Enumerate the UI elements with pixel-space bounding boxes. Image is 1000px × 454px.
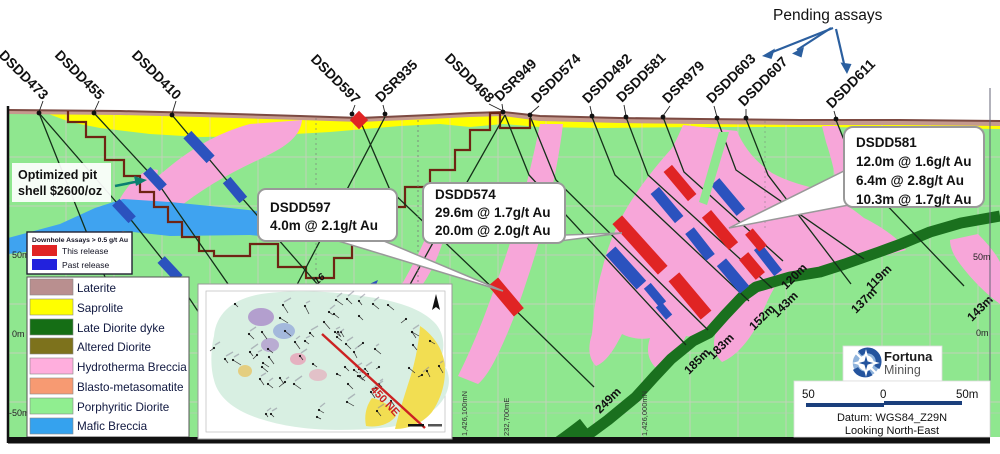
svg-text:Mining: Mining bbox=[884, 363, 921, 377]
svg-text:0: 0 bbox=[880, 389, 886, 401]
svg-text:1,426,000mN: 1,426,000mN bbox=[640, 391, 649, 436]
svg-text:50: 50 bbox=[802, 389, 815, 401]
svg-text:12.0m @ 1.6g/t Au: 12.0m @ 1.6g/t Au bbox=[856, 154, 971, 169]
svg-text:-50m: -50m bbox=[9, 408, 30, 418]
svg-text:DSDD597: DSDD597 bbox=[270, 200, 331, 215]
svg-text:29.6m @ 1.7g/t Au: 29.6m @ 1.7g/t Au bbox=[435, 205, 550, 220]
svg-text:Optimized pit: Optimized pit bbox=[18, 168, 98, 182]
svg-text:1,426,100mN: 1,426,100mN bbox=[460, 391, 469, 436]
svg-text:Saprolite: Saprolite bbox=[77, 302, 123, 315]
svg-text:0m: 0m bbox=[12, 329, 25, 339]
svg-text:Porphyritic Diorite: Porphyritic Diorite bbox=[77, 401, 169, 414]
svg-text:10.3m @ 1.7g/t Au: 10.3m @ 1.7g/t Au bbox=[856, 192, 971, 207]
svg-text:Downhole Assays > 0.5 g/t Au: Downhole Assays > 0.5 g/t Au bbox=[32, 237, 128, 244]
svg-text:Laterite: Laterite bbox=[77, 282, 116, 295]
svg-text:shell $2600/oz: shell $2600/oz bbox=[18, 184, 102, 198]
svg-text:This release: This release bbox=[62, 246, 109, 256]
svg-text:Altered Diorite: Altered Diorite bbox=[77, 341, 151, 354]
svg-text:4.0m @ 2.1g/t Au: 4.0m @ 2.1g/t Au bbox=[270, 218, 378, 233]
svg-text:50m: 50m bbox=[956, 389, 978, 401]
svg-text:20.0m @ 2.0g/t Au: 20.0m @ 2.0g/t Au bbox=[435, 223, 550, 238]
svg-text:DSDD581: DSDD581 bbox=[856, 135, 917, 150]
svg-text:Hydrotherma Breccia: Hydrotherma Breccia bbox=[77, 361, 187, 374]
svg-text:Pending assays: Pending assays bbox=[773, 7, 883, 24]
svg-text:Looking North-East: Looking North-East bbox=[845, 425, 939, 437]
svg-text:50m: 50m bbox=[973, 252, 991, 262]
svg-text:DSDD574: DSDD574 bbox=[435, 187, 496, 202]
svg-text:Fortuna: Fortuna bbox=[884, 349, 933, 364]
svg-text:Late Diorite dyke: Late Diorite dyke bbox=[77, 322, 165, 335]
svg-text:Mafic Breccia: Mafic Breccia bbox=[77, 420, 148, 433]
svg-text:6.4m @ 2.8g/t Au: 6.4m @ 2.8g/t Au bbox=[856, 173, 964, 188]
svg-text:Past release: Past release bbox=[62, 260, 110, 270]
svg-text:Datum: WGS84_Z29N: Datum: WGS84_Z29N bbox=[837, 412, 947, 424]
svg-text:0m: 0m bbox=[976, 328, 989, 338]
svg-text:232,700mE: 232,700mE bbox=[502, 398, 511, 436]
svg-text:Blasto-metasomatite: Blasto-metasomatite bbox=[77, 381, 184, 394]
